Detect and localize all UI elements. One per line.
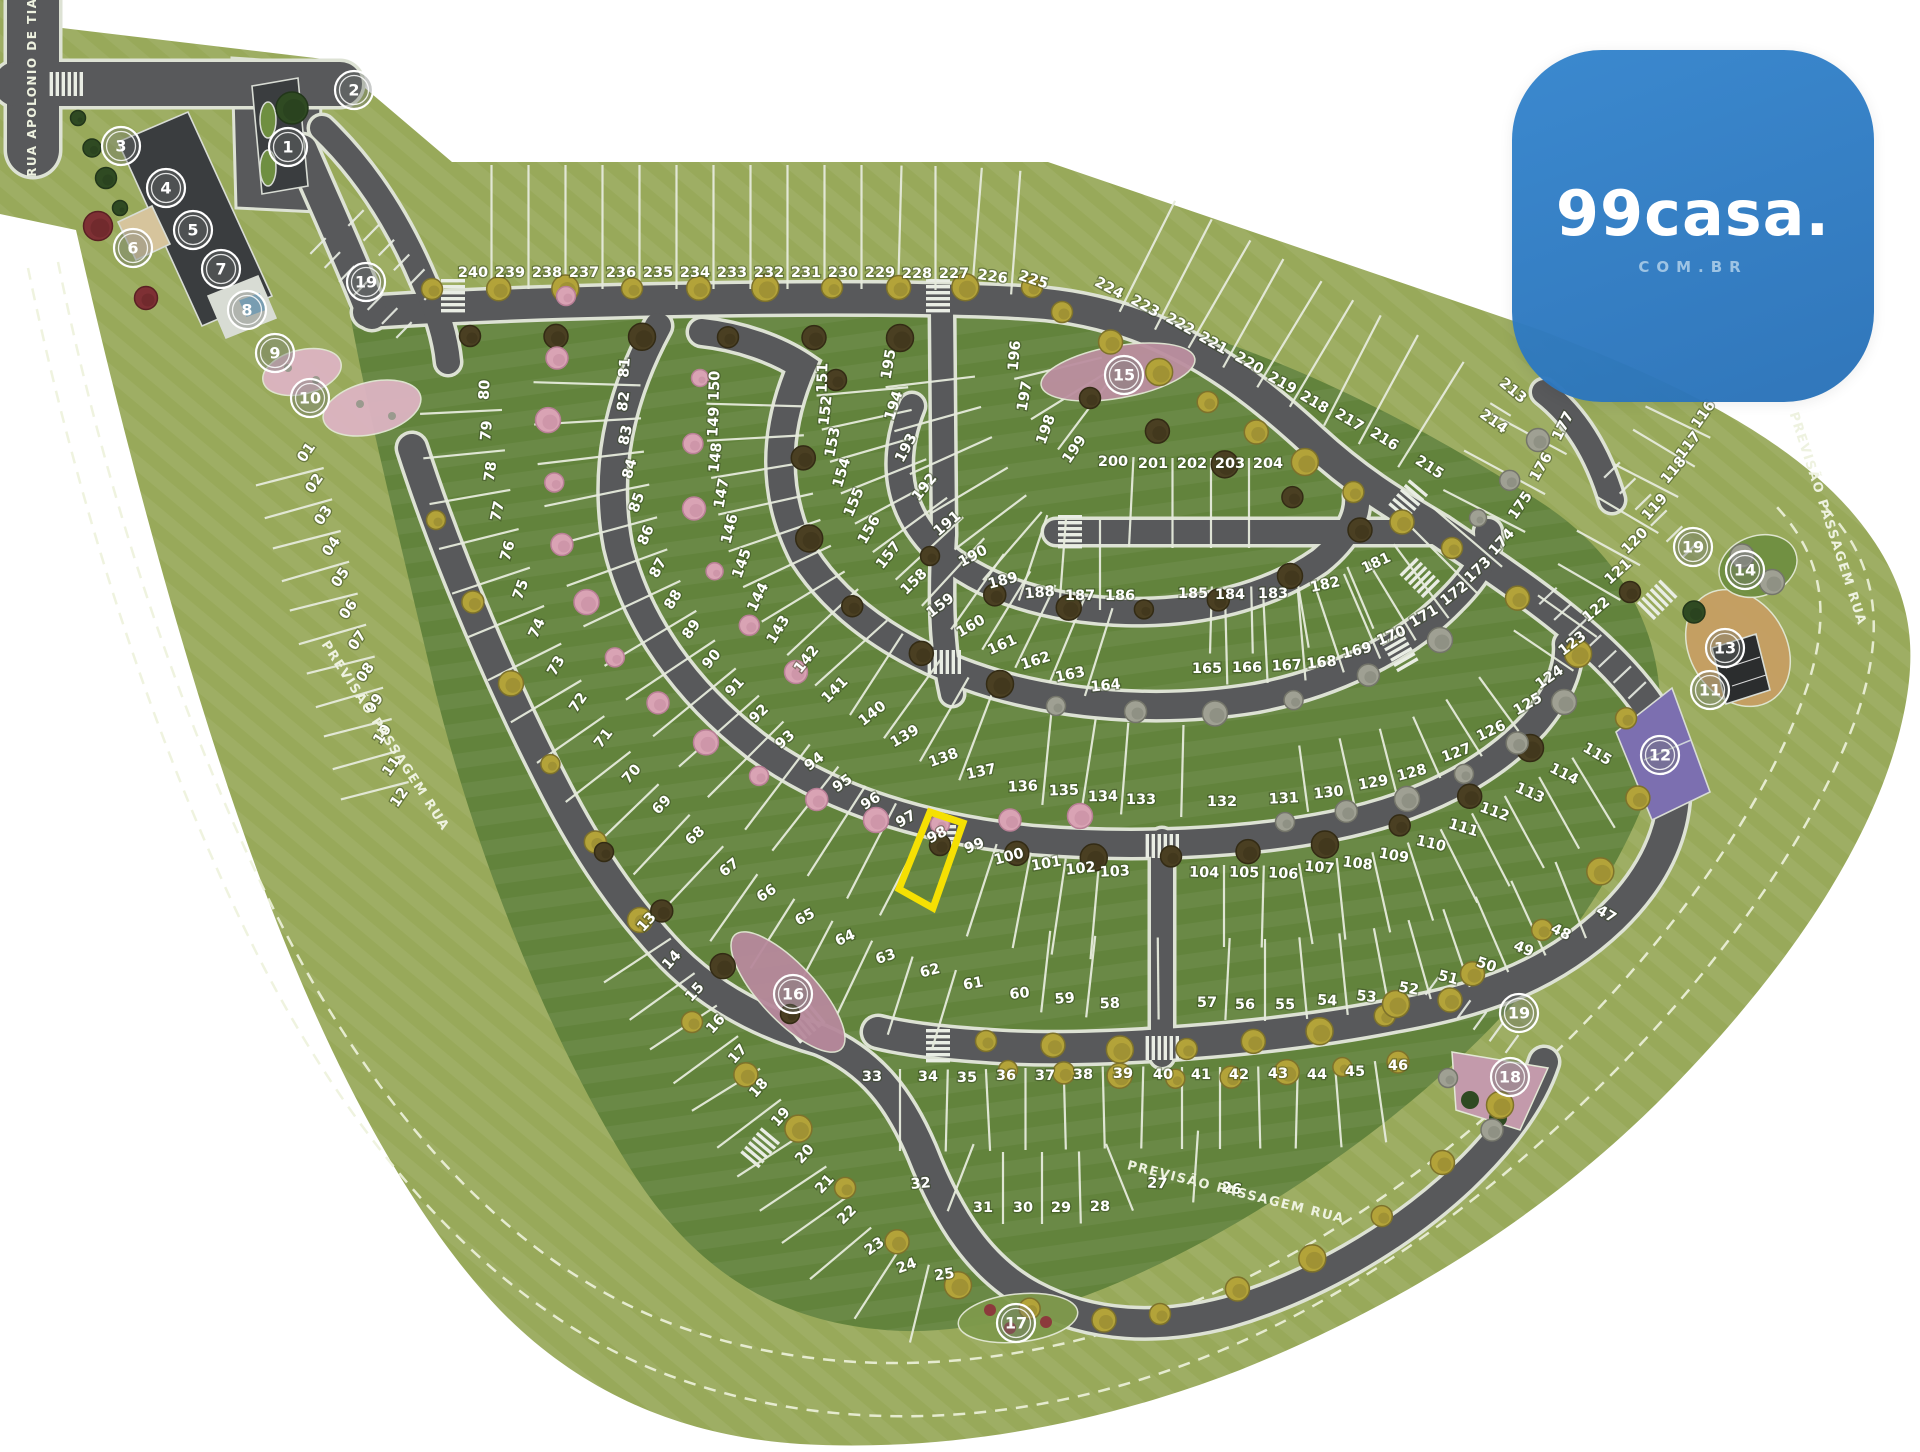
lot-label-80: 80 xyxy=(476,379,493,400)
lot-label-239: 239 xyxy=(495,265,525,281)
svg-text:8: 8 xyxy=(241,301,252,320)
svg-text:3: 3 xyxy=(115,137,126,156)
svg-text:9: 9 xyxy=(269,344,280,363)
lot-label-237: 237 xyxy=(569,265,599,281)
lot-label-107: 107 xyxy=(1304,859,1336,878)
lot-label-106: 106 xyxy=(1268,865,1299,883)
lot-label-201: 201 xyxy=(1138,456,1168,472)
amenity-marker-17: 17 xyxy=(997,1304,1035,1342)
lot-label-25: 25 xyxy=(933,1266,955,1285)
lot-label-151: 151 xyxy=(814,362,831,393)
lot-label-105: 105 xyxy=(1229,864,1260,881)
lot-label-57: 57 xyxy=(1197,995,1217,1011)
lot-label-165: 165 xyxy=(1192,661,1222,677)
lot-label-28: 28 xyxy=(1090,1199,1110,1215)
lot-label-33: 33 xyxy=(862,1069,882,1085)
lot-label-43: 43 xyxy=(1268,1066,1288,1082)
lot-label-78: 78 xyxy=(482,460,501,482)
lot-label-41: 41 xyxy=(1191,1067,1211,1083)
amenity-marker-11: 11 xyxy=(1691,671,1729,709)
lot-label-187: 187 xyxy=(1065,588,1095,604)
lot-label-36: 36 xyxy=(996,1068,1016,1084)
svg-text:14: 14 xyxy=(1734,561,1756,580)
lot-label-136: 136 xyxy=(1007,778,1038,796)
amenity-marker-19: 19 xyxy=(1500,994,1538,1032)
lot-label-30: 30 xyxy=(1013,1200,1033,1216)
amenity-marker-6: 6 xyxy=(114,229,152,267)
lot-label-54: 54 xyxy=(1317,992,1338,1009)
lot-label-40: 40 xyxy=(1153,1067,1173,1083)
street-label-0: RUA APOLONIO DE TIANA xyxy=(25,0,39,177)
lot-label-148: 148 xyxy=(706,442,725,474)
lot-divider xyxy=(1251,587,1253,654)
lot-label-233: 233 xyxy=(717,265,747,281)
logo-text: 99casa. xyxy=(1556,177,1830,250)
lot-label-204: 204 xyxy=(1253,456,1283,472)
lot-label-59: 59 xyxy=(1054,990,1075,1007)
lot-label-166: 166 xyxy=(1232,660,1262,676)
lot-label-35: 35 xyxy=(957,1070,977,1086)
amenity-marker-9: 9 xyxy=(256,334,294,372)
lot-label-230: 230 xyxy=(828,265,858,281)
lot-label-79: 79 xyxy=(478,420,496,442)
lot-label-31: 31 xyxy=(973,1200,993,1216)
amenity-marker-4: 4 xyxy=(147,169,185,207)
svg-text:2: 2 xyxy=(348,81,359,100)
lot-label-38: 38 xyxy=(1073,1067,1093,1083)
lot-label-186: 186 xyxy=(1105,588,1135,604)
amenity-marker-8: 8 xyxy=(228,291,266,329)
amenity-marker-12: 12 xyxy=(1641,736,1679,774)
amenity-marker-5: 5 xyxy=(174,211,212,249)
lot-label-133: 133 xyxy=(1126,792,1156,808)
amenity-marker-10: 10 xyxy=(291,379,329,417)
lot-label-60: 60 xyxy=(1009,985,1031,1003)
svg-text:12: 12 xyxy=(1649,746,1671,765)
svg-text:11: 11 xyxy=(1699,681,1721,700)
lot-label-231: 231 xyxy=(791,265,821,281)
amenity-marker-15: 15 xyxy=(1105,356,1143,394)
lot-label-184: 184 xyxy=(1215,587,1245,603)
amenity-marker-16: 16 xyxy=(774,975,812,1013)
lot-label-130: 130 xyxy=(1313,783,1345,802)
logo-99casa: 99casa. COM.BR xyxy=(1512,50,1874,402)
lot-label-104: 104 xyxy=(1189,864,1220,881)
svg-text:16: 16 xyxy=(782,985,804,1004)
amenity-marker-2: 2 xyxy=(335,71,373,109)
lot-label-196: 196 xyxy=(1006,340,1025,372)
lot-label-183: 183 xyxy=(1258,586,1288,602)
svg-text:7: 7 xyxy=(215,260,226,279)
lot-label-202: 202 xyxy=(1177,456,1207,472)
lot-label-150: 150 xyxy=(706,370,723,401)
amenity-marker-19: 19 xyxy=(1674,528,1712,566)
svg-text:19: 19 xyxy=(1508,1004,1530,1023)
lot-label-103: 103 xyxy=(1099,863,1130,881)
amenity-marker-7: 7 xyxy=(202,250,240,288)
svg-text:4: 4 xyxy=(160,179,171,198)
lot-label-229: 229 xyxy=(865,265,895,281)
svg-text:13: 13 xyxy=(1714,639,1736,658)
lot-label-185: 185 xyxy=(1178,586,1208,602)
tree-green xyxy=(71,111,86,126)
lot-label-235: 235 xyxy=(643,265,673,281)
lot-label-55: 55 xyxy=(1275,997,1295,1013)
lot-label-81: 81 xyxy=(616,357,634,379)
amenity-marker-14: 14 xyxy=(1726,551,1764,589)
lot-divider xyxy=(1158,938,1159,1020)
svg-text:5: 5 xyxy=(187,221,198,240)
lot-label-188: 188 xyxy=(1024,584,1056,603)
svg-text:17: 17 xyxy=(1005,1314,1027,1333)
svg-text:6: 6 xyxy=(127,239,138,258)
lot-label-46: 46 xyxy=(1388,1058,1408,1074)
lot-label-44: 44 xyxy=(1307,1067,1327,1083)
lot-label-56: 56 xyxy=(1235,997,1255,1013)
lot-label-234: 234 xyxy=(680,265,710,281)
lot-label-58: 58 xyxy=(1099,996,1120,1013)
lot-label-37: 37 xyxy=(1035,1068,1055,1084)
lot-label-227: 227 xyxy=(939,266,969,282)
lot-label-149: 149 xyxy=(705,406,723,437)
lot-label-39: 39 xyxy=(1113,1066,1133,1082)
lot-label-32: 32 xyxy=(910,1175,932,1193)
lot-label-167: 167 xyxy=(1271,657,1302,675)
lot-label-238: 238 xyxy=(532,265,562,281)
svg-text:19: 19 xyxy=(1682,538,1704,557)
lot-label-200: 200 xyxy=(1098,454,1128,470)
lot-label-53: 53 xyxy=(1356,988,1378,1006)
lot-label-152: 152 xyxy=(816,395,835,427)
lot-label-132: 132 xyxy=(1207,794,1237,810)
lot-label-240: 240 xyxy=(458,265,488,281)
svg-text:1: 1 xyxy=(282,138,293,157)
lot-label-236: 236 xyxy=(606,265,636,281)
amenity-marker-1: 1 xyxy=(269,128,307,166)
amenity-marker-18: 18 xyxy=(1491,1058,1529,1096)
lot-label-203: 203 xyxy=(1215,456,1245,472)
lot-label-102: 102 xyxy=(1065,859,1097,878)
lot-label-29: 29 xyxy=(1051,1200,1071,1216)
tree-green xyxy=(113,201,128,216)
lot-label-232: 232 xyxy=(754,265,784,281)
lot-label-164: 164 xyxy=(1090,676,1122,695)
svg-text:10: 10 xyxy=(299,389,321,408)
svg-text:19: 19 xyxy=(355,273,377,292)
lot-label-168: 168 xyxy=(1306,653,1338,672)
lot-label-131: 131 xyxy=(1268,790,1299,808)
logo-subtext: COM.BR xyxy=(1638,258,1747,276)
lot-label-42: 42 xyxy=(1229,1067,1249,1083)
lot-label-34: 34 xyxy=(918,1069,938,1085)
site-plan-image: 0102030405060708091011121314151617181920… xyxy=(0,0,1920,1452)
amenity-marker-19: 19 xyxy=(347,263,385,301)
lot-label-134: 134 xyxy=(1088,789,1119,806)
lot-label-82: 82 xyxy=(615,390,634,412)
amenity-marker-3: 3 xyxy=(102,127,140,165)
svg-text:15: 15 xyxy=(1113,366,1135,385)
amenity-marker-13: 13 xyxy=(1706,629,1744,667)
svg-text:18: 18 xyxy=(1499,1068,1521,1087)
lot-label-228: 228 xyxy=(902,266,932,282)
lot-label-45: 45 xyxy=(1345,1064,1365,1080)
lot-label-135: 135 xyxy=(1048,782,1079,799)
